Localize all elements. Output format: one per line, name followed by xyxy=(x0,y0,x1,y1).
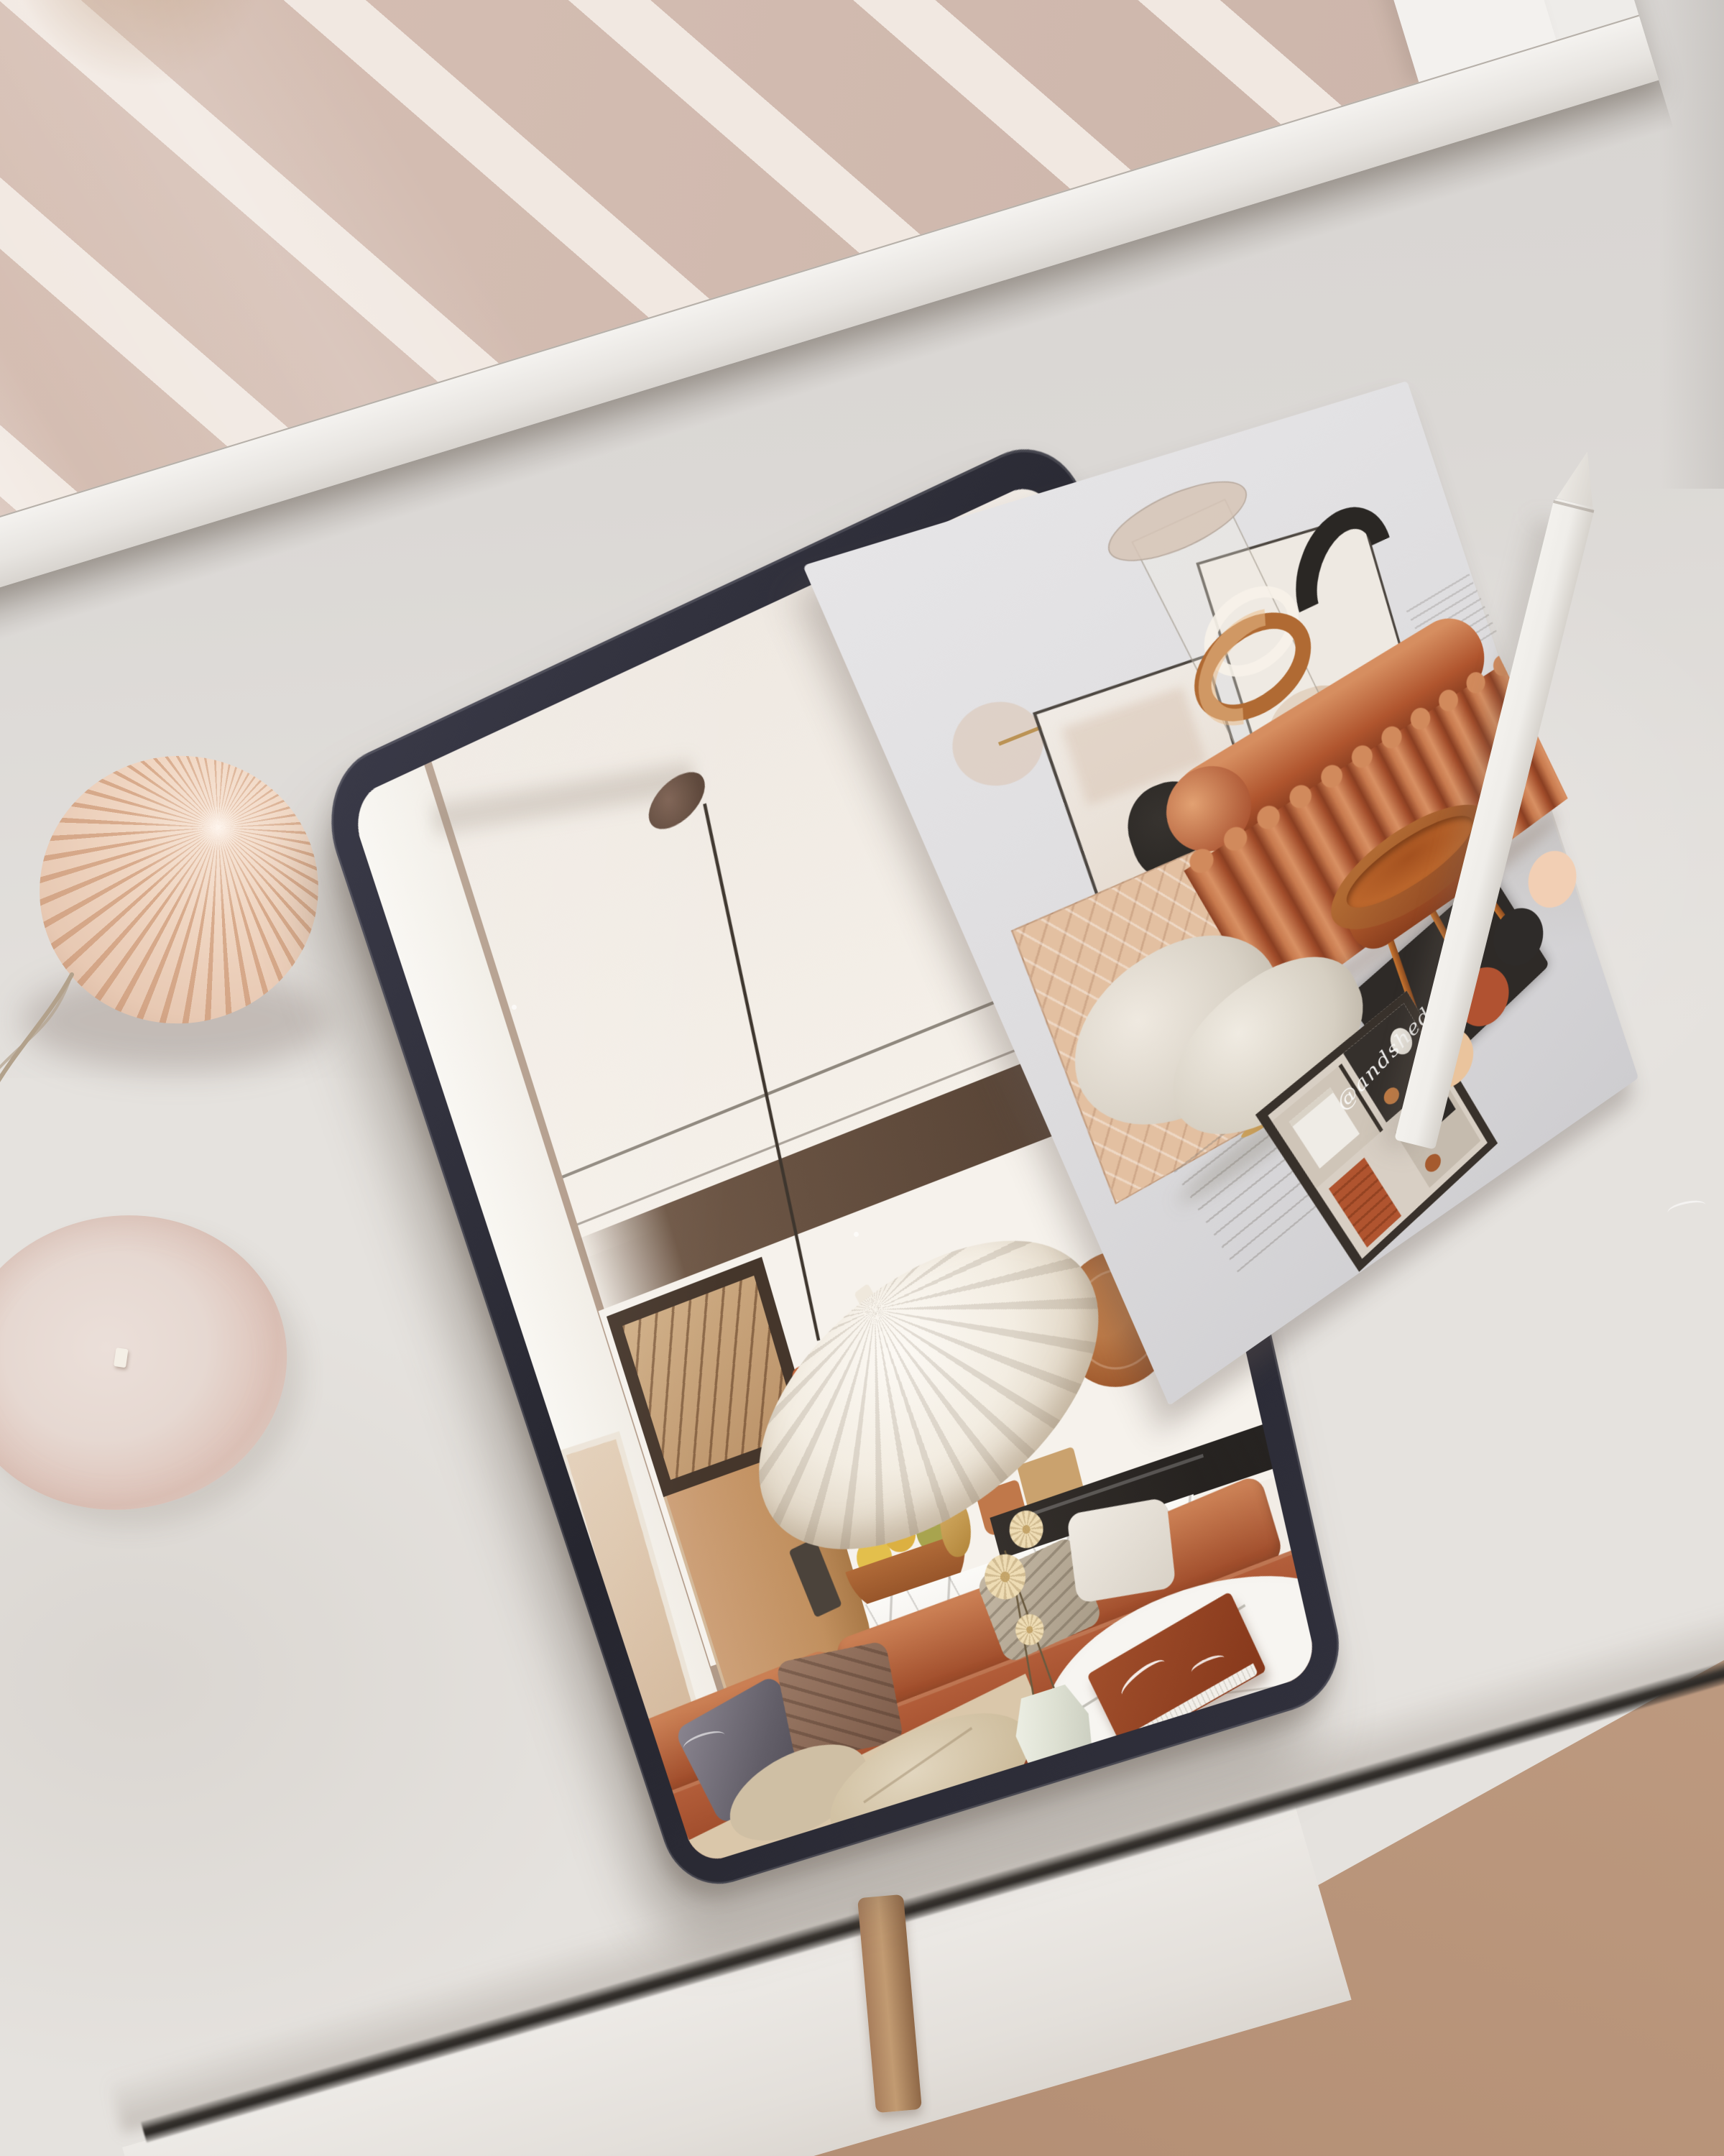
flat-lay-photo: @andshedraws xyxy=(0,0,1724,2156)
candle-wick xyxy=(114,1347,128,1368)
ornament-string xyxy=(0,927,201,1143)
dust-speck xyxy=(512,1005,517,1010)
plan-sofa xyxy=(1329,1158,1401,1248)
dust-speck xyxy=(854,1232,859,1237)
lamp-globe xyxy=(939,689,1056,800)
